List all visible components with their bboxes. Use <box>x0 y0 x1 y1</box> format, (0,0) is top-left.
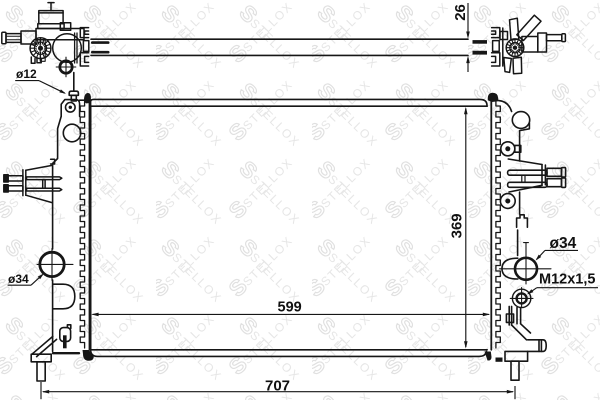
svg-text:M12x1,5: M12x1,5 <box>539 271 595 287</box>
svg-text:369: 369 <box>448 213 465 238</box>
svg-text:ø34: ø34 <box>550 235 577 252</box>
svg-text:ø34: ø34 <box>8 272 29 286</box>
svg-text:599: 599 <box>278 300 302 316</box>
svg-text:ø12: ø12 <box>16 67 37 81</box>
svg-text:707: 707 <box>265 377 290 394</box>
svg-text:26: 26 <box>452 4 469 21</box>
